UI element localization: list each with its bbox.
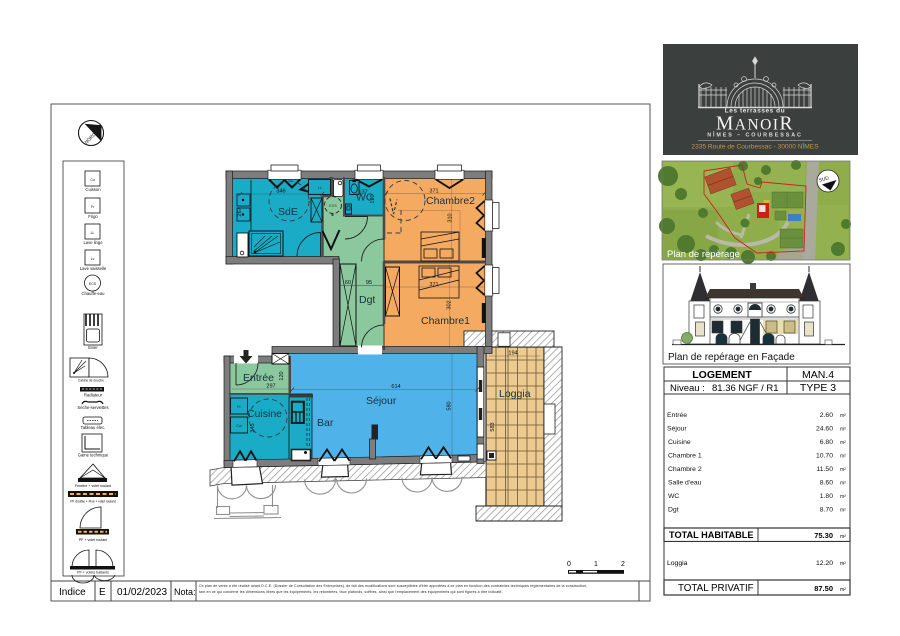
svg-text:Ce plan de vente a été réalisé: Ce plan de vente a été réalisé avant D.C… xyxy=(199,584,587,588)
svg-text:302: 302 xyxy=(447,300,453,309)
svg-text:Tableau élec.: Tableau élec. xyxy=(81,425,106,430)
svg-text:Niveau :: Niveau : xyxy=(670,383,705,394)
svg-text:E: E xyxy=(99,587,106,598)
svg-text:Cuisine: Cuisine xyxy=(668,439,691,446)
svg-text:Chambre 2: Chambre 2 xyxy=(668,466,702,473)
svg-text:10.70: 10.70 xyxy=(816,453,833,460)
svg-text:Evier: Evier xyxy=(88,345,98,350)
svg-text:Cui: Cui xyxy=(236,424,242,428)
svg-text:Cuisson: Cuisson xyxy=(85,187,101,192)
svg-text:0: 0 xyxy=(567,561,571,568)
svg-text:Plan de repèrage: Plan de repèrage xyxy=(667,249,740,260)
svg-text:Chauffe-eau: Chauffe-eau xyxy=(82,291,106,296)
svg-text:24.60: 24.60 xyxy=(816,426,833,433)
svg-text:Plan de repérage en Façade: Plan de repérage en Façade xyxy=(668,352,795,363)
svg-text:m²: m² xyxy=(840,561,846,567)
svg-text:Lv: Lv xyxy=(91,257,95,261)
svg-text:Lave linge: Lave linge xyxy=(83,240,103,245)
svg-text:Loggia: Loggia xyxy=(499,388,531,400)
svg-text:Bar: Bar xyxy=(317,417,334,429)
svg-text:m²: m² xyxy=(840,534,846,540)
svg-text:Cuisine: Cuisine xyxy=(247,408,282,420)
svg-text:Entrée: Entrée xyxy=(243,372,274,384)
svg-text:MANOIR: MANOIR xyxy=(716,114,794,135)
svg-text:m²: m² xyxy=(840,427,846,433)
svg-text:310: 310 xyxy=(448,213,454,222)
svg-text:2335 Route de Courbessac - 300: 2335 Route de Courbessac - 30000 NÎMES xyxy=(691,142,819,151)
svg-text:TOTAL PRIVATIF: TOTAL PRIVATIF xyxy=(678,583,754,594)
svg-text:tant en ce qui concerne les di: tant en ce qui concerne les dimensions l… xyxy=(199,590,503,594)
svg-text:m²: m² xyxy=(840,454,846,460)
svg-text:1: 1 xyxy=(594,561,598,568)
svg-text:583: 583 xyxy=(490,422,496,431)
svg-text:345: 345 xyxy=(250,423,256,432)
svg-text:2.60: 2.60 xyxy=(820,412,833,419)
svg-text:MAN.4: MAN.4 xyxy=(802,369,834,381)
svg-text:Gaine technique: Gaine technique xyxy=(78,453,109,458)
svg-text:Lave vaisselle: Lave vaisselle xyxy=(80,266,107,271)
svg-text:PF double + Fixe + volet roula: PF double + Fixe + volet roulant xyxy=(70,500,115,504)
svg-text:Fenêtre + volet roulant: Fenêtre + volet roulant xyxy=(75,484,111,488)
svg-text:m²: m² xyxy=(840,481,846,487)
svg-text:120: 120 xyxy=(279,371,285,380)
svg-text:8.70: 8.70 xyxy=(820,507,833,514)
svg-text:87.50: 87.50 xyxy=(814,584,833,593)
svg-text:Chambre1: Chambre1 xyxy=(421,315,470,327)
svg-text:LOGEMENT: LOGEMENT xyxy=(692,369,752,381)
svg-text:TYPE 3: TYPE 3 xyxy=(800,382,836,394)
svg-text:Loggia: Loggia xyxy=(667,560,688,567)
svg-text:Cu: Cu xyxy=(90,178,94,182)
svg-text:8.60: 8.60 xyxy=(820,480,833,487)
svg-text:Chambre2: Chambre2 xyxy=(426,195,475,207)
svg-text:SdE: SdE xyxy=(278,206,298,218)
svg-text:371: 371 xyxy=(429,189,438,195)
svg-text:11.50: 11.50 xyxy=(816,466,833,473)
svg-text:TOTAL HABITABLE: TOTAL HABITABLE xyxy=(669,530,754,540)
svg-text:267: 267 xyxy=(237,207,243,216)
svg-text:614: 614 xyxy=(391,384,400,390)
svg-text:m²: m² xyxy=(840,587,846,593)
svg-text:Dgt: Dgt xyxy=(359,294,375,306)
svg-text:Chambre 1: Chambre 1 xyxy=(668,453,702,460)
svg-text:Sèche-serviettes: Sèche-serviettes xyxy=(77,405,108,410)
svg-text:Dgt: Dgt xyxy=(668,507,679,514)
svg-text:580: 580 xyxy=(447,401,453,410)
svg-text:Cabine de douche: Cabine de douche xyxy=(78,379,104,383)
svg-text:01/02/2023: 01/02/2023 xyxy=(117,587,167,598)
svg-text:LL: LL xyxy=(318,186,322,190)
svg-text:ECS: ECS xyxy=(89,282,97,286)
svg-text:m²: m² xyxy=(840,494,846,500)
svg-text:Salle d'eau: Salle d'eau xyxy=(668,480,702,487)
svg-text:PF + volets battants: PF + volets battants xyxy=(77,571,109,575)
svg-text:NÎMES – COURBESSAC: NÎMES – COURBESSAC xyxy=(707,131,803,139)
svg-text:81.36 NGF / R1: 81.36 NGF / R1 xyxy=(712,383,779,394)
svg-text:346: 346 xyxy=(276,189,285,195)
svg-text:12.20: 12.20 xyxy=(816,560,833,567)
svg-text:297: 297 xyxy=(266,384,275,390)
svg-text:Frigo: Frigo xyxy=(88,214,98,219)
svg-text:371: 371 xyxy=(429,282,438,288)
svg-text:194: 194 xyxy=(508,351,517,357)
svg-text:Séjour: Séjour xyxy=(667,426,687,433)
svg-text:Nota:: Nota: xyxy=(174,587,196,597)
svg-text:Séjour: Séjour xyxy=(366,395,397,407)
svg-text:m²: m² xyxy=(840,413,846,419)
svg-text:75.30: 75.30 xyxy=(814,531,833,540)
svg-text:Entrée: Entrée xyxy=(667,412,687,419)
svg-text:60: 60 xyxy=(345,280,351,286)
svg-text:m²: m² xyxy=(840,440,846,446)
svg-text:WC: WC xyxy=(668,493,679,500)
svg-text:Indice: Indice xyxy=(59,587,86,598)
svg-text:LL: LL xyxy=(91,231,95,235)
svg-text:ECS: ECS xyxy=(329,204,337,208)
svg-text:PF + volet roulant: PF + volet roulant xyxy=(79,538,107,542)
svg-text:6.80: 6.80 xyxy=(820,439,833,446)
svg-text:m²: m² xyxy=(840,467,846,473)
svg-text:1.80: 1.80 xyxy=(820,493,833,500)
svg-text:95: 95 xyxy=(366,280,372,286)
svg-text:m²: m² xyxy=(840,508,846,514)
svg-text:Radiateur: Radiateur xyxy=(84,393,103,398)
svg-text:WC: WC xyxy=(356,192,374,204)
svg-text:2: 2 xyxy=(621,561,625,568)
